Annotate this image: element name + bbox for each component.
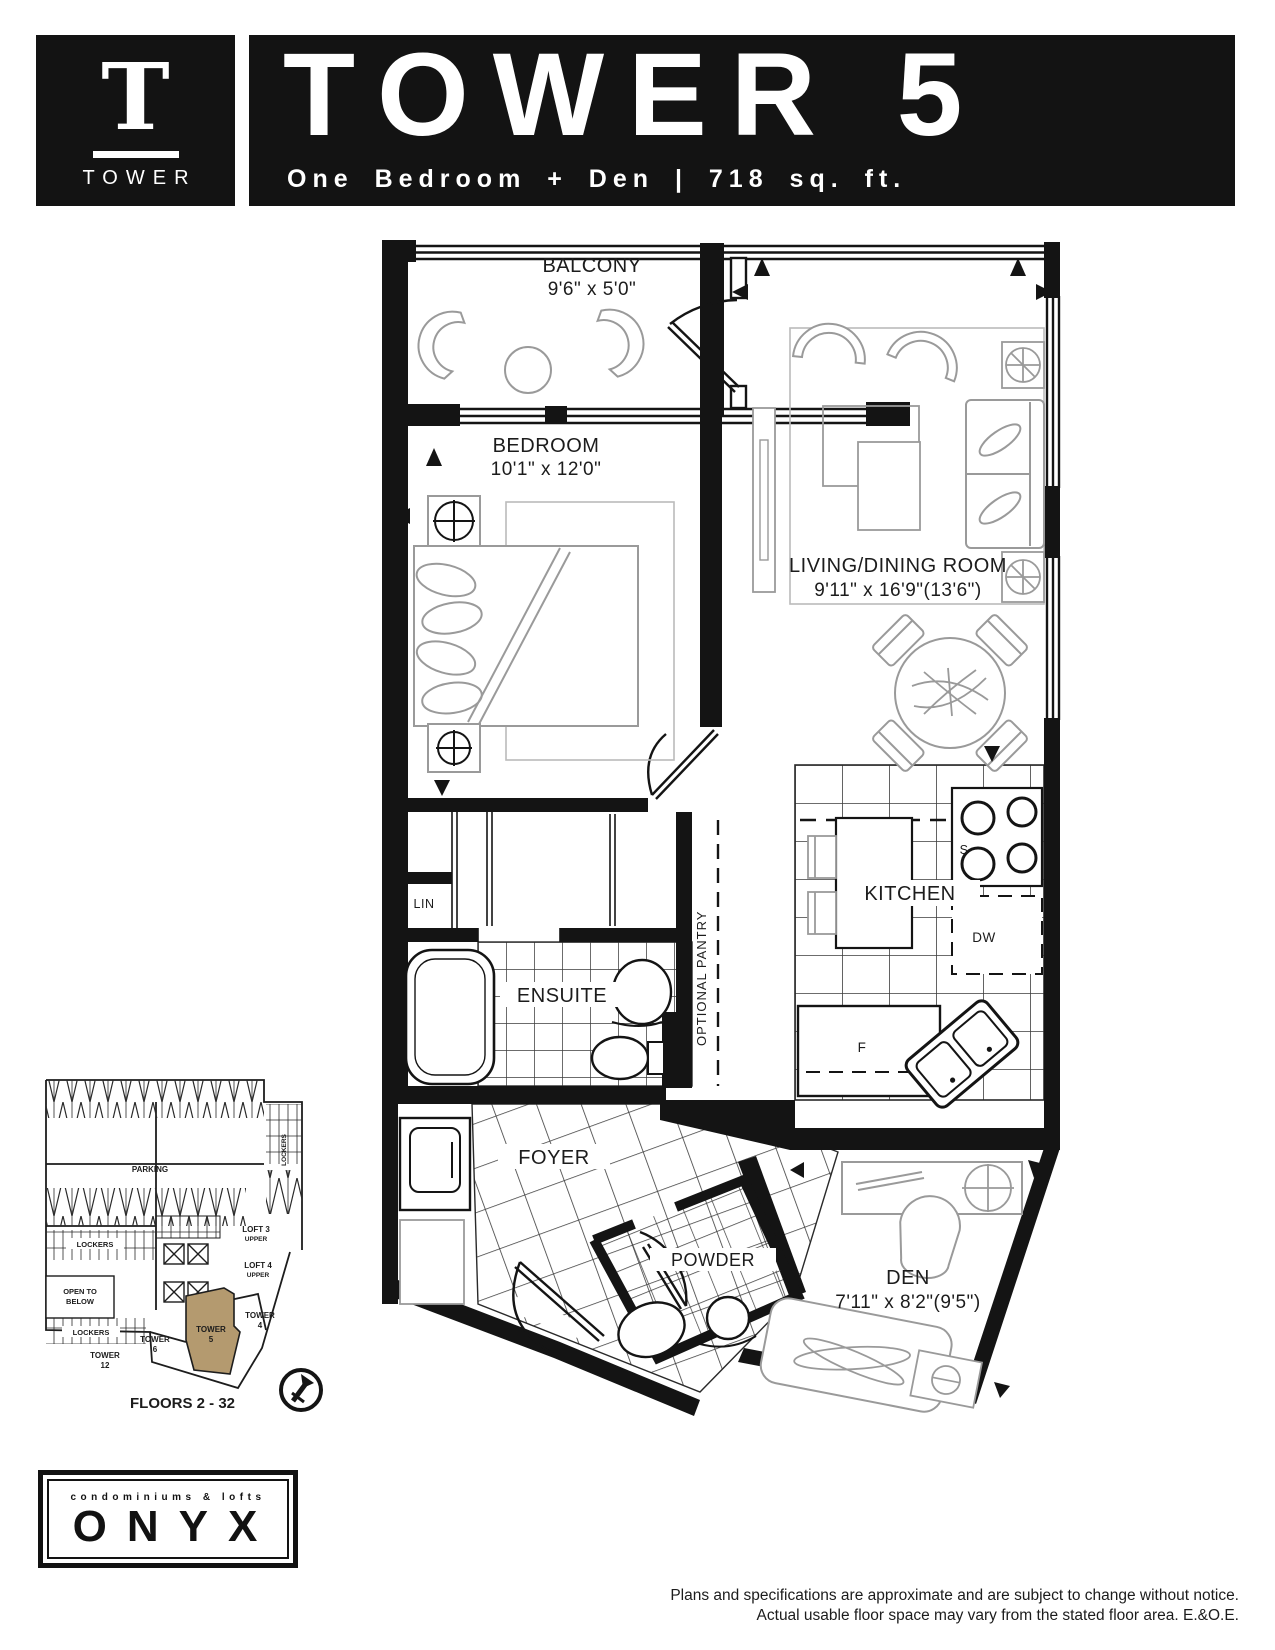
loft3-label: LOFT 3 (242, 1225, 270, 1234)
lockers-label-vertical: LOCKERS (281, 1133, 288, 1165)
disclaimer-line2: Actual usable floor space may vary from … (670, 1606, 1239, 1626)
disclaimer: Plans and specifications are approximate… (670, 1586, 1239, 1626)
parking-stalls (266, 1170, 302, 1214)
stove (952, 788, 1042, 886)
armchair (887, 321, 967, 381)
tower12-label: TOWER (90, 1351, 120, 1360)
lockers-label: LOCKERS (77, 1240, 114, 1249)
tower6-num: 6 (153, 1345, 158, 1354)
bedroom-dims: 10'1" x 12'0" (491, 459, 602, 480)
living-dims: 9'11" x 16'9"(13'6") (814, 580, 982, 601)
floor-plan-drawing: BALCONY 9'6" x 5'0" BEDROOM 10'1" x 12'0… (0, 0, 1275, 1650)
counter (400, 1220, 464, 1304)
tower-badge: T TOWER (36, 35, 235, 206)
open-to-below-line2: BELOW (66, 1297, 95, 1306)
balcony-dims: 9'6" x 5'0" (548, 279, 637, 300)
bedroom-furniture (413, 496, 674, 772)
den-dims: 7'11" x 8'2"(9'5") (835, 1292, 980, 1313)
foyer-label: FOYER (518, 1147, 589, 1169)
closet-doors (452, 812, 615, 942)
dining-set (871, 613, 1028, 772)
page-title: TOWER 5 (283, 31, 986, 161)
fridge-label: F (858, 1040, 867, 1055)
floorplan-page: { "header": { "badge_letter": "T", "badg… (0, 0, 1275, 1650)
badge-letter: T (36, 51, 235, 143)
tower6-label: TOWER (140, 1335, 170, 1344)
parking-stalls (46, 1080, 264, 1118)
lockers-label: LOCKERS (73, 1328, 110, 1337)
page-subtitle: One Bedroom + Den | 718 sq. ft. (287, 165, 906, 194)
toilet (592, 1037, 648, 1079)
dishwasher-label: DW (972, 930, 996, 945)
tower12-num: 12 (101, 1361, 110, 1370)
disclaimer-line1: Plans and specifications are approximate… (670, 1586, 1239, 1606)
console (753, 408, 775, 592)
tower5-label: TOWER (196, 1325, 226, 1334)
bedroom-label: BEDROOM (493, 435, 600, 457)
open-to-below-line1: OPEN TO (63, 1287, 97, 1296)
title-banner: TOWER 5 One Bedroom + Den | 718 sq. ft. (249, 35, 1235, 206)
loft3-upper: UPPER (245, 1236, 268, 1243)
ensuite-label: ENSUITE (517, 985, 607, 1007)
sofa (966, 400, 1044, 548)
corner-plant (1002, 552, 1044, 602)
armchair (793, 320, 868, 363)
tower5-num: 5 (209, 1335, 214, 1344)
badge-word: TOWER (36, 167, 235, 190)
pantry-label: OPTIONAL PANTRY (694, 911, 709, 1046)
den-label: DEN (886, 1267, 930, 1289)
balcony-furniture (411, 302, 650, 393)
loft4-label: LOFT 4 (244, 1261, 272, 1270)
tower4-label: TOWER (245, 1311, 275, 1320)
powder-label: POWDER (671, 1250, 755, 1270)
stove-label: S (960, 843, 969, 857)
onyx-logo-frame: condominiums & lofts ONYX (47, 1479, 289, 1559)
bedroom-door (648, 730, 718, 799)
balcony-label: BALCONY (542, 255, 641, 277)
parking-label: PARKING (132, 1165, 168, 1174)
tower4-num: 4 (258, 1321, 263, 1330)
powder-sink (707, 1297, 749, 1339)
floors-caption: FLOORS 2 - 32 (130, 1395, 235, 1412)
bathtub (406, 950, 494, 1084)
coffee-table (858, 442, 920, 530)
living-label: LIVING/DINING ROOM (789, 555, 1007, 577)
linen-label: LIN (414, 897, 435, 911)
key-plan: PARKING LOCKERS LOCKERS LOCKERS OPEN TO … (46, 1080, 321, 1412)
north-arrow-icon (281, 1370, 321, 1410)
kitchen-label: KITCHEN (864, 883, 955, 905)
loft4-upper: UPPER (247, 1272, 270, 1279)
laundry (400, 1118, 470, 1304)
onyx-logo: condominiums & lofts ONYX (38, 1470, 298, 1568)
corner-plant (1002, 342, 1044, 388)
dishwasher (952, 896, 1042, 974)
main-floor-plan: BALCONY 9'6" x 5'0" BEDROOM 10'1" x 12'0… (382, 240, 1060, 1416)
onyx-name: ONYX (49, 1505, 287, 1549)
badge-divider (93, 151, 179, 158)
stairs (156, 1216, 220, 1238)
